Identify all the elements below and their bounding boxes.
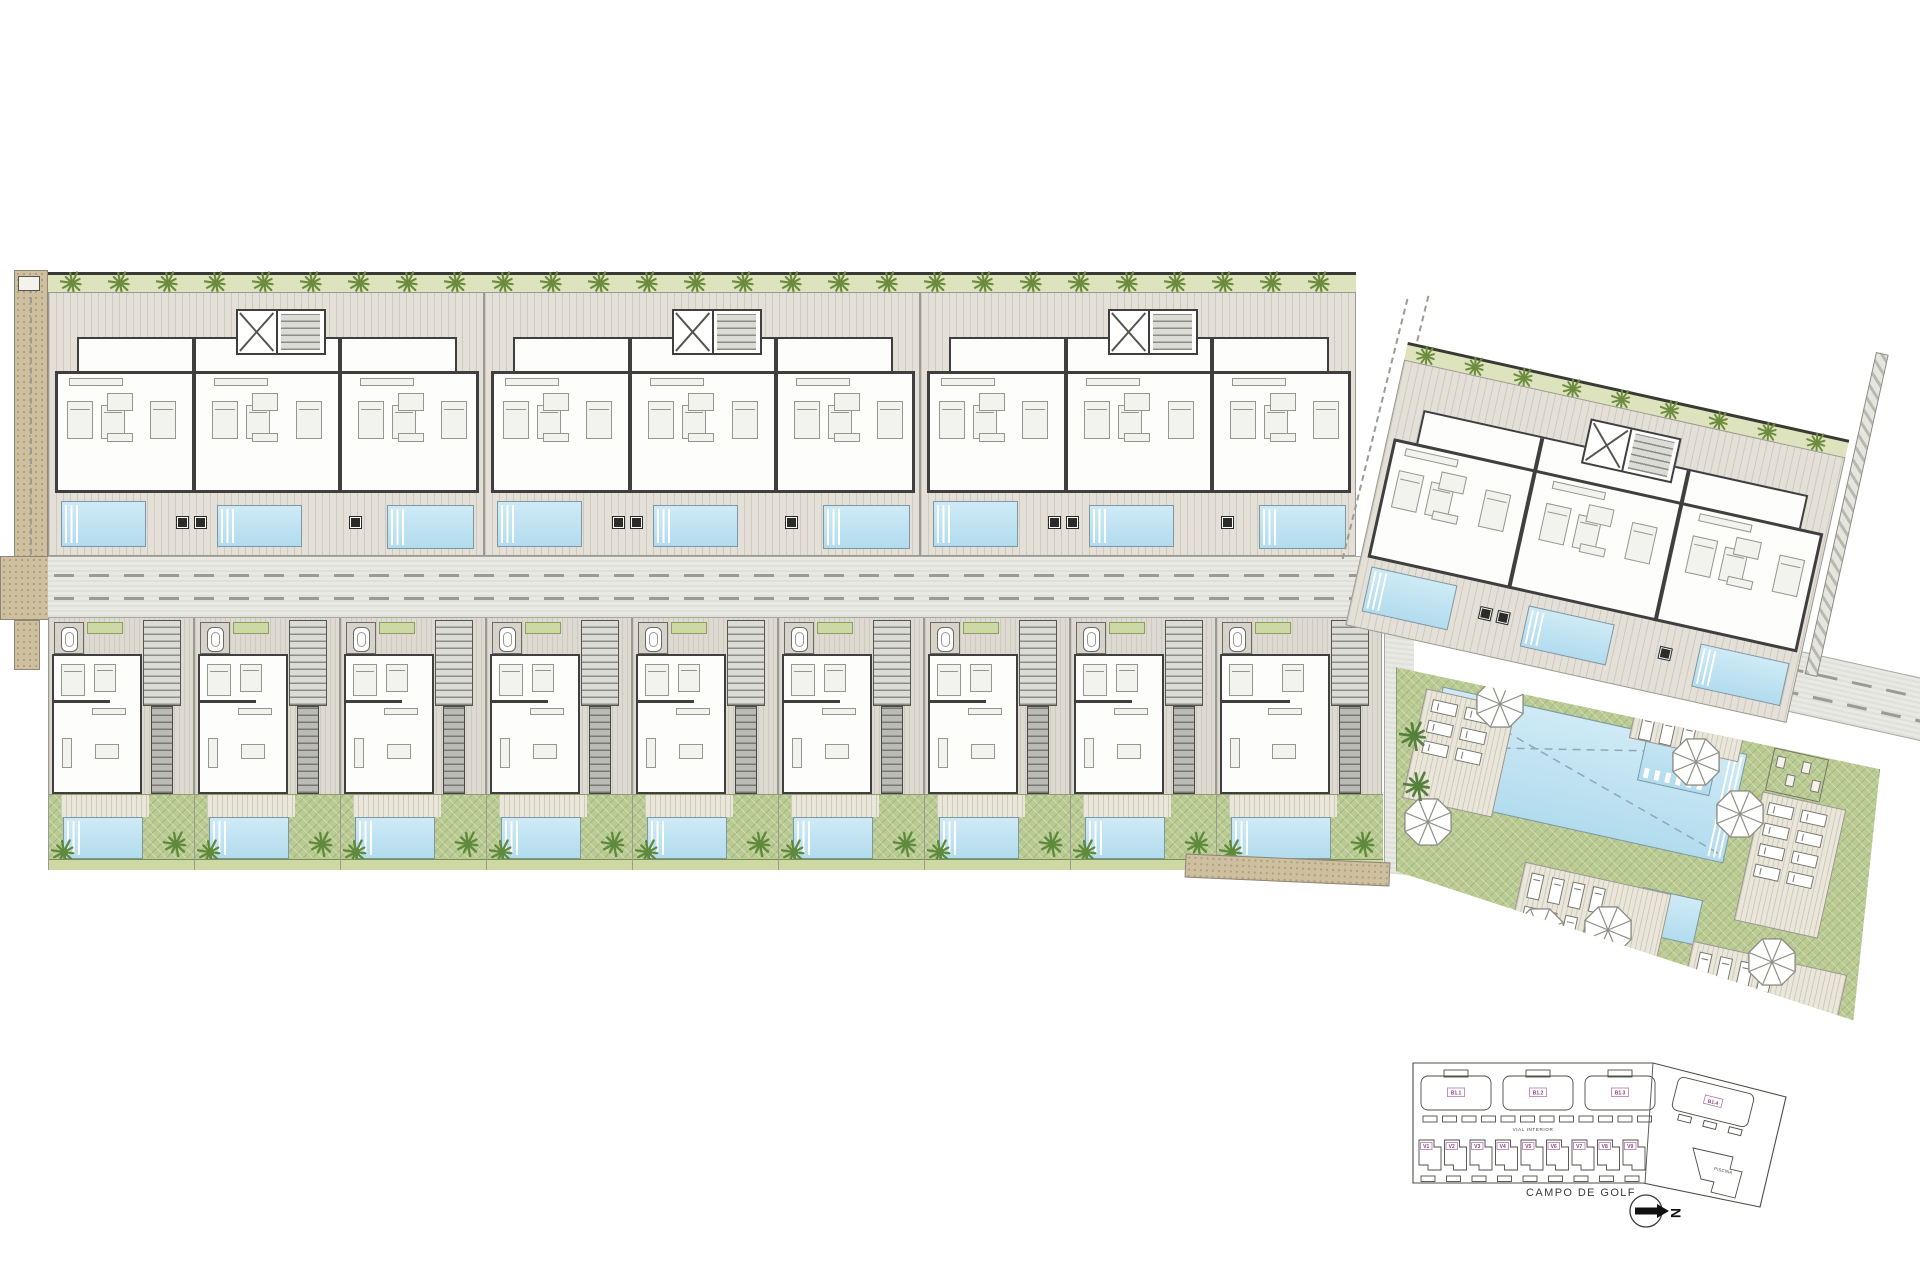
parasol-icon [1669, 735, 1723, 789]
elevator-icon [674, 311, 711, 353]
private-pool [1089, 505, 1174, 547]
bed-pillow [210, 667, 228, 672]
keyplan-pool-shape [1693, 1148, 1742, 1198]
bed-pillow [1285, 667, 1301, 671]
sun-lounger [1715, 956, 1733, 984]
entry-court [638, 622, 668, 654]
entry-court [1076, 622, 1106, 654]
bed-pillow [797, 404, 817, 410]
bed [586, 401, 612, 439]
lounger-headrest [1554, 881, 1562, 886]
terrace-deck [207, 795, 295, 817]
sofa [208, 738, 218, 768]
villa-building [344, 654, 434, 794]
bed-pillow [535, 667, 551, 671]
picnic-table [1775, 755, 1786, 769]
dining-table [979, 393, 1005, 411]
villa-building [198, 654, 288, 794]
keyplan-block-label: B1.4 [1707, 1099, 1719, 1107]
parasol-icon [1713, 787, 1767, 841]
outdoor-tub-icon [499, 627, 516, 652]
lounger-headrest [1458, 751, 1463, 759]
party-wall [1064, 339, 1068, 493]
villa-garden [487, 794, 633, 870]
dining-table [834, 393, 860, 411]
parasol [1745, 935, 1799, 989]
bed-pillow [1025, 404, 1045, 410]
keyplan-villa-pad [1421, 1176, 1435, 1182]
north-arrow: N [1630, 1195, 1684, 1227]
villa-footprint [924, 618, 1070, 870]
bed-pillow [1547, 506, 1568, 516]
bed [61, 664, 85, 696]
private-pool [1362, 566, 1458, 630]
entry-planter [817, 622, 853, 634]
pool-steps [827, 509, 840, 545]
sofa [252, 433, 278, 442]
villa-garden [779, 794, 925, 870]
garden-tree [1403, 771, 1433, 801]
lounger-headrest [1429, 723, 1434, 731]
bed [1168, 401, 1194, 439]
palm-tree [1351, 831, 1377, 857]
villa-building [636, 654, 726, 794]
bed [207, 664, 231, 696]
garden-hedge [779, 859, 925, 870]
keyplan-terrace-pad [1560, 1116, 1574, 1122]
dining-table [825, 744, 849, 759]
lounger-headrest [1803, 813, 1808, 821]
bed [1313, 401, 1339, 439]
lounger-headrest [1686, 726, 1694, 731]
entry-planter [963, 622, 999, 634]
kitchen-counter [676, 708, 710, 715]
palm-icon [893, 831, 919, 857]
sofa [1270, 433, 1296, 442]
entry-planter [1255, 622, 1291, 634]
villa-stair-lower [1173, 706, 1195, 794]
apartment-block-B1.4 [1345, 342, 1849, 725]
bed-pillow [1086, 667, 1104, 672]
lounger-headrest [1789, 874, 1794, 882]
villas-row [48, 618, 1384, 870]
villa-V6 [778, 618, 924, 870]
palm-tree [1039, 831, 1065, 857]
palm-icon [601, 831, 627, 857]
keyplan-villa-pad [1472, 1176, 1486, 1182]
keyplan-terrace-pad [1599, 1116, 1613, 1122]
perimeter-path-junction [0, 556, 55, 620]
lounger-headrest [1574, 885, 1582, 890]
sofa [354, 738, 364, 768]
bed-pillow [1232, 667, 1250, 672]
kitchen-counter [650, 378, 704, 386]
bed [648, 401, 674, 439]
bed [358, 401, 384, 439]
palm-icon [747, 831, 773, 857]
bed-pillow [361, 404, 381, 410]
pool-steps [1263, 509, 1276, 545]
terrace-grate [1658, 647, 1671, 660]
bed-pillow [444, 404, 464, 410]
elevator-icon [1584, 421, 1631, 470]
keyplan-villa-pad [1600, 1176, 1614, 1182]
bed-pillow [942, 404, 962, 410]
keyplan-villa-label: V9 [1627, 1144, 1633, 1150]
terrace-grate [613, 517, 624, 528]
kitchen-counter [69, 378, 123, 386]
bed [1229, 664, 1253, 696]
pool-steps [1366, 571, 1387, 611]
villa-stair-lower [881, 706, 903, 794]
parasol [1401, 795, 1455, 849]
private-pool [61, 501, 146, 547]
sofa [979, 433, 1005, 442]
private-pool [1691, 644, 1789, 707]
parasol-icon [1513, 905, 1567, 959]
terrace-grate [1067, 517, 1078, 528]
tree-icon [1403, 771, 1433, 801]
lounger-headrest [1755, 1002, 1763, 1007]
lounger-headrest [1714, 993, 1722, 998]
villa-stair-upper [727, 620, 765, 706]
villa-footprint [1216, 618, 1382, 870]
bed-pillow [506, 404, 526, 410]
keyplan-terrace-pad [1462, 1116, 1476, 1122]
villa-garden [195, 794, 341, 870]
sun-lounger [1638, 714, 1656, 742]
bed [791, 664, 815, 696]
dining-table [688, 393, 714, 411]
garden-hedge [49, 859, 195, 870]
dining-table [107, 393, 133, 411]
villa-stair-upper [435, 620, 473, 706]
dining-table [1272, 744, 1296, 759]
keyplan-terrace-pad [1618, 1116, 1632, 1122]
villa-garden [341, 794, 487, 870]
lounger-headrest [1701, 955, 1709, 960]
terrace-deck [937, 795, 1025, 817]
bed-pillow [153, 404, 173, 410]
private-pool [823, 505, 910, 549]
bed-pillow [64, 667, 82, 672]
room-wall [54, 700, 110, 703]
sun-lounger [1547, 877, 1565, 905]
outdoor-tub-icon [791, 627, 808, 652]
villa-V7 [924, 618, 1070, 870]
elevator-icon [1110, 311, 1147, 353]
bed-pillow [389, 667, 405, 671]
room-wall [784, 700, 840, 703]
stair-core [672, 309, 761, 355]
dining-table [252, 393, 278, 411]
palm-icon [1039, 831, 1065, 857]
bed-pillow [1487, 493, 1508, 503]
kitchen-counter [1086, 378, 1140, 386]
entry-court [784, 622, 814, 654]
top-hedge [48, 272, 1356, 292]
bed-pillow [1087, 404, 1107, 410]
keyplan-villa-label: V2 [1449, 1144, 1455, 1150]
sun-lounger [1766, 802, 1794, 820]
picnic-table [1801, 761, 1812, 775]
villa-footprint [340, 618, 486, 870]
stair-flight [1628, 433, 1676, 477]
room-wall [346, 700, 402, 703]
bed [937, 664, 961, 696]
terrace-grate [786, 517, 797, 528]
terrace-grate [1497, 611, 1510, 624]
sofa [62, 738, 72, 768]
keyplan-villa-label: V8 [1602, 1144, 1608, 1150]
kitchen-counter [1114, 708, 1148, 715]
garden-hedge [195, 859, 341, 870]
bed-pillow [299, 404, 319, 410]
kitchen-counter [214, 378, 268, 386]
sun-lounger [1753, 863, 1781, 881]
bed [67, 401, 93, 439]
bed-pillow [356, 667, 374, 672]
bed-pillow [940, 667, 958, 672]
stair-flight [717, 314, 756, 350]
party-wall [1210, 339, 1214, 493]
villa-footprint [1070, 618, 1216, 870]
palm-tree [747, 831, 773, 857]
bed [499, 664, 523, 696]
private-pool [1259, 505, 1346, 549]
terrace-grate [195, 517, 206, 528]
bed-pillow [70, 404, 90, 410]
palm-icon [1351, 831, 1377, 857]
bed-pillow [1781, 558, 1802, 568]
palm-icon [309, 831, 335, 857]
party-wall [628, 339, 632, 493]
party-wall [338, 339, 342, 493]
villa-pool [1231, 817, 1331, 859]
lounger-headrest [1722, 960, 1730, 965]
lounger-headrest [1434, 703, 1439, 711]
lounger-headrest [1645, 717, 1653, 722]
sun-lounger [1790, 850, 1818, 868]
lounger-headrest [1770, 806, 1775, 814]
bed-pillow [648, 667, 666, 672]
key-plan: B1.1B1.2B1.3V1V2V3V4V5V6V7V8V9B1.4 VIAL … [1405, 1050, 1815, 1255]
bed [1282, 664, 1304, 692]
block-footprint [48, 292, 484, 556]
villa-V8 [1070, 618, 1216, 870]
sun-lounger [1454, 747, 1482, 765]
villa-stair-lower [1027, 706, 1049, 794]
room-wall [1076, 700, 1132, 703]
terrace-grate [631, 517, 642, 528]
palm-icon [455, 831, 481, 857]
bed [732, 401, 758, 439]
garden-tree [1399, 721, 1429, 751]
block-footprint [1345, 360, 1845, 723]
pool-steps [221, 509, 234, 543]
villa-footprint [48, 618, 194, 870]
picnic-table [1784, 774, 1795, 788]
party-wall [192, 339, 196, 493]
private-pool [387, 505, 474, 549]
villa-stair-upper [1019, 620, 1057, 706]
sofa [792, 738, 802, 768]
keyplan-boundary [1413, 1063, 1786, 1207]
bed-pillow [1233, 404, 1253, 410]
bed [939, 401, 965, 439]
lounger-headrest [1462, 731, 1467, 739]
bed [240, 664, 262, 692]
villa-building [782, 654, 872, 794]
elevator-icon [238, 311, 275, 353]
garden-hedge [341, 859, 487, 870]
villa-V1 [48, 618, 194, 870]
bed [150, 401, 176, 439]
outdoor-tub-icon [1229, 627, 1246, 652]
kitchen-counter [238, 708, 272, 715]
outdoor-tub-icon [207, 627, 224, 652]
entry-planter [1109, 622, 1145, 634]
private-pool [933, 501, 1018, 547]
terrace-deck [499, 795, 587, 817]
sun-lounger [1757, 843, 1785, 861]
sofa [938, 738, 948, 768]
pool-steps [65, 505, 78, 543]
parasol [1581, 903, 1635, 957]
keyplan-terrace-pad [1703, 1120, 1717, 1129]
villa-footprint [194, 618, 340, 870]
villa-building [52, 654, 142, 794]
terrace-deck [1229, 795, 1337, 817]
terrace-deck [353, 795, 441, 817]
bed [877, 401, 903, 439]
bed-pillow [651, 404, 671, 410]
elevator-cell [674, 311, 713, 353]
villa-V2 [194, 618, 340, 870]
party-wall [774, 339, 778, 493]
sun-lounger [1426, 720, 1454, 738]
bed [970, 664, 992, 692]
bed [678, 664, 700, 692]
villa-garden [925, 794, 1071, 870]
villa-stair-upper [1165, 620, 1203, 706]
keyplan-villa-pad [1549, 1176, 1563, 1182]
keyplan-villa-pad [1574, 1176, 1588, 1182]
bed-pillow [1634, 525, 1655, 535]
bed [94, 664, 116, 692]
garden-hedge [487, 859, 633, 870]
keyplan-rotated-block: B1.4 [1669, 1076, 1755, 1137]
bed-pillow [681, 667, 697, 671]
keyplan-terrace-pad [1501, 1116, 1515, 1122]
pool-steps [1525, 610, 1545, 646]
terrace-deck [1083, 795, 1171, 817]
villa-V9 [1216, 618, 1382, 870]
keyplan-villa-label: V4 [1500, 1144, 1506, 1150]
villa-footprint [632, 618, 778, 870]
terrace-grate [1479, 607, 1492, 620]
sun-lounger [1526, 872, 1544, 900]
bed-pillow [735, 404, 755, 410]
villa-stair-lower [297, 706, 319, 794]
lounger-headrest [1761, 847, 1766, 855]
perimeter-path-lower [14, 620, 40, 670]
bed [386, 664, 408, 692]
parasol [1513, 905, 1567, 959]
villa-stair-upper [289, 620, 327, 706]
sun-lounger [1786, 871, 1814, 889]
villa-building [490, 654, 580, 794]
keyplan-terrace-pad [1521, 1116, 1535, 1122]
bed [1230, 401, 1256, 439]
sun-lounger [1795, 830, 1823, 848]
lounger-headrest [1533, 876, 1541, 881]
dining-table [971, 744, 995, 759]
room-wall [492, 700, 548, 703]
parasol [1669, 735, 1723, 789]
villa-stair-upper [873, 620, 911, 706]
pool-steps [391, 509, 404, 545]
dining-table [543, 393, 569, 411]
north-letter: N [1668, 1208, 1684, 1218]
sofa [107, 433, 133, 442]
bed [1022, 401, 1048, 439]
villa-stair-upper [143, 620, 181, 706]
parasol-icon [1581, 903, 1635, 957]
room-wall [1222, 700, 1290, 703]
palm-tree [455, 831, 481, 857]
dining-table [1124, 393, 1150, 411]
terrace-deck [645, 795, 733, 817]
villa-stair-upper [1331, 620, 1369, 706]
lounger-headrest [1735, 997, 1743, 1002]
villa-V3 [340, 618, 486, 870]
terrace-deck [61, 795, 149, 817]
bed-pillow [215, 404, 235, 410]
bed-pillow [880, 404, 900, 410]
lounger-headrest [1595, 890, 1603, 895]
lounger-headrest [1467, 710, 1472, 718]
lounger-headrest [1799, 833, 1804, 841]
private-pool [1520, 605, 1615, 665]
apartment-block-B1.1 [48, 292, 484, 556]
site-plan-canvas: B1.1B1.2B1.3V1V2V3V4V5V6V7V8V9B1.4 VIAL … [0, 0, 1920, 1280]
stair-core [1108, 309, 1197, 355]
bed [645, 664, 669, 696]
lounger-headrest [1794, 854, 1799, 862]
kitchen-counter [968, 708, 1002, 715]
elevator-cell [1584, 421, 1633, 471]
tree-icon [1399, 721, 1429, 751]
elevator-cell [238, 311, 277, 353]
outdoor-tub-icon [937, 627, 954, 652]
entry-planter [87, 622, 123, 634]
kitchen-counter [530, 708, 564, 715]
villa-building [928, 654, 1018, 794]
entry-court [1222, 622, 1252, 654]
villa-stair-lower [151, 706, 173, 794]
parasol [1473, 677, 1527, 731]
kitchen-counter [1232, 378, 1286, 386]
villa-stair-lower [1339, 706, 1361, 794]
entry-planter [671, 622, 707, 634]
entry-planter [379, 622, 415, 634]
bed-pillow [1400, 474, 1421, 484]
bed [1083, 664, 1107, 696]
keyplan-villa-label: V1 [1423, 1144, 1429, 1150]
kitchen-counter [384, 708, 418, 715]
private-pool [497, 501, 582, 547]
